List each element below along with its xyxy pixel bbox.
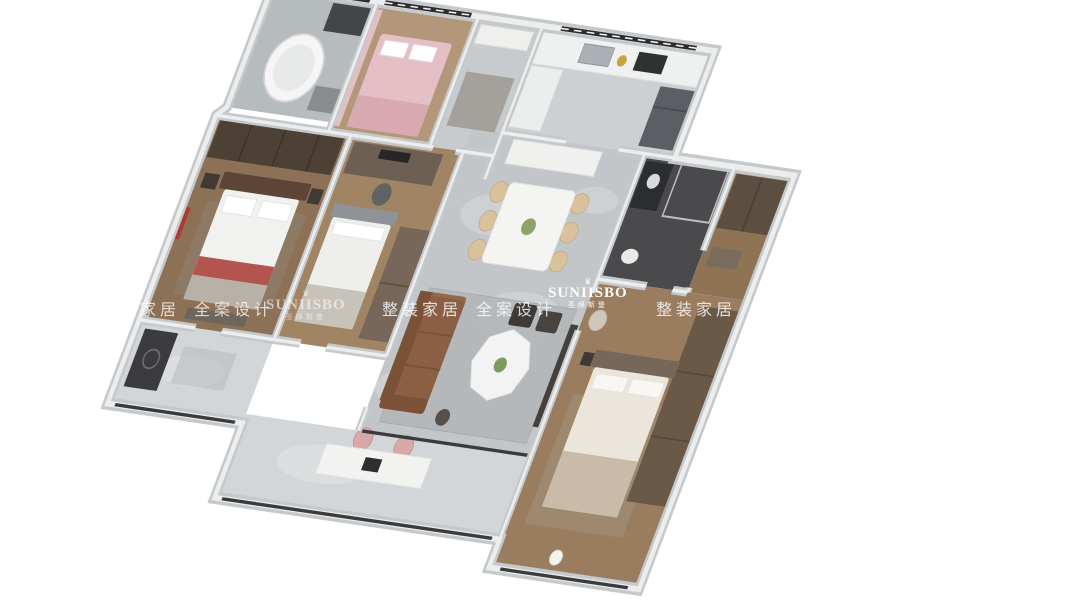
- master-pillow-right: [257, 201, 293, 222]
- kitchen-sink: [578, 44, 615, 67]
- master-pillow-left: [221, 195, 257, 216]
- kids-pillow: [380, 40, 410, 58]
- render-canvas: ♛ SUNIISBO 圣缔斯堡 整装家居 全案设计 ♛ SUNIISBO 圣缔斯…: [0, 0, 1080, 608]
- kids-pillow-2: [408, 44, 438, 62]
- floorplan-3d-render: [0, 0, 1080, 608]
